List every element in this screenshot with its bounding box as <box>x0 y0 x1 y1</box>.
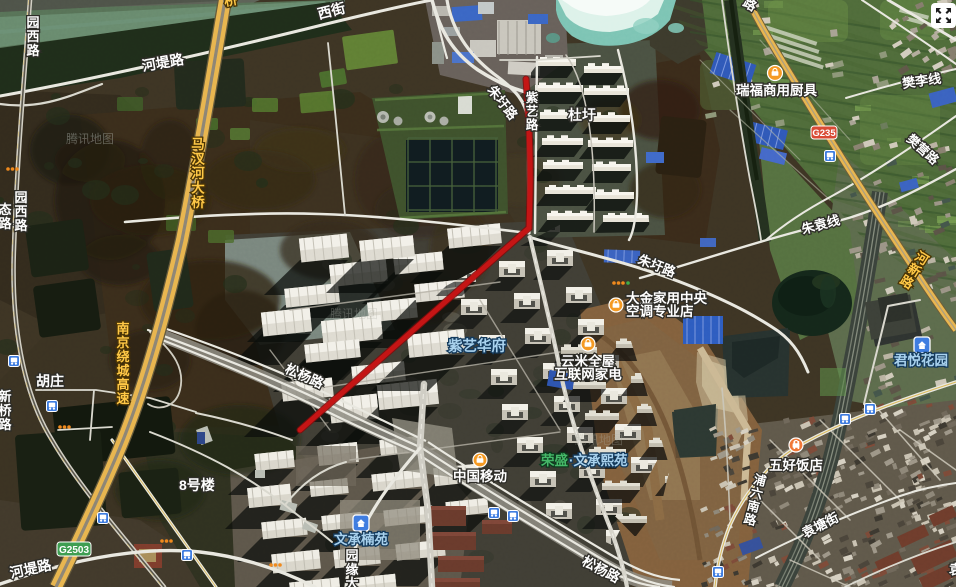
svg-text:南京绕城高速: 南京绕城高速 <box>116 321 129 406</box>
svg-text:腾讯地图: 腾讯地图 <box>330 306 378 321</box>
svg-text:园西路: 园西路 <box>14 190 28 233</box>
svg-text:G2503: G2503 <box>59 545 89 556</box>
svg-text:五好饭店: 五好饭店 <box>769 457 823 473</box>
svg-text:8号楼: 8号楼 <box>179 477 215 493</box>
svg-text:马汊河大桥: 马汊河大桥 <box>191 137 205 210</box>
svg-text:袁: 袁 <box>948 562 956 577</box>
svg-text:文承楠苑: 文承楠苑 <box>334 531 388 547</box>
svg-text:互联网家电: 互联网家电 <box>554 366 622 382</box>
svg-text:君悦花园: 君悦花园 <box>893 352 948 368</box>
svg-text:园缘大道: 园缘大道 <box>345 548 358 587</box>
svg-text:腾讯地图: 腾讯地图 <box>575 432 623 447</box>
svg-text:园西路: 园西路 <box>26 15 40 58</box>
svg-text:态路: 态路 <box>0 202 12 231</box>
svg-text:瑞福商用厨具: 瑞福商用厨具 <box>736 82 817 98</box>
svg-text:胡庄: 胡庄 <box>36 373 64 389</box>
svg-text:G235: G235 <box>812 128 836 139</box>
svg-text:·文承熙苑: ·文承熙苑 <box>569 452 628 468</box>
svg-text:腾讯地图: 腾讯地图 <box>66 131 114 146</box>
svg-text:紫艺路: 紫艺路 <box>526 90 539 132</box>
svg-text:中国移动: 中国移动 <box>453 468 507 484</box>
svg-text:新桥路: 新桥路 <box>0 389 12 432</box>
svg-text:荣盛: 荣盛 <box>540 452 569 468</box>
svg-text:紫艺华府: 紫艺华府 <box>448 337 506 355</box>
svg-text:杜圩: 杜圩 <box>568 107 596 123</box>
svg-text:空调专业店: 空调专业店 <box>626 303 694 319</box>
